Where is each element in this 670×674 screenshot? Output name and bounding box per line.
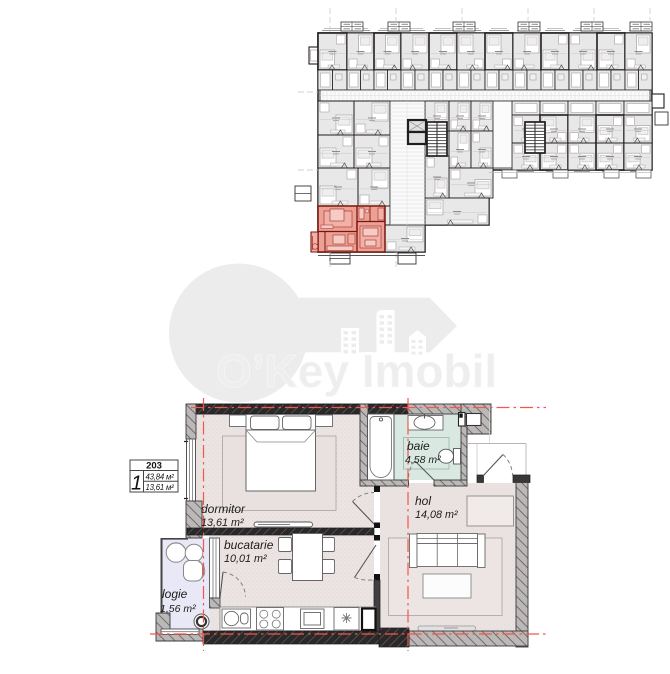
svg-text:dormitor: dormitor <box>201 502 246 516</box>
svg-text:bucatarie: bucatarie <box>224 538 274 552</box>
svg-text:hol: hol <box>415 494 431 508</box>
svg-text:13,61 m²: 13,61 m² <box>201 517 244 529</box>
svg-text:13,61 м²: 13,61 м² <box>146 483 175 492</box>
svg-text:1: 1 <box>131 473 142 495</box>
svg-text:14,08 m²: 14,08 m² <box>415 509 458 521</box>
svg-text:4,58 m²: 4,58 m² <box>405 454 441 466</box>
svg-text:203: 203 <box>146 461 162 472</box>
svg-text:O’Key Imobil: O’Key Imobil <box>216 345 497 397</box>
svg-text:1,56 m²: 1,56 m² <box>160 603 196 615</box>
svg-text:logie: logie <box>162 587 188 601</box>
svg-text:10,01 m²: 10,01 m² <box>224 553 267 565</box>
svg-text:43,84 м²: 43,84 м² <box>146 473 175 482</box>
svg-text:baie: baie <box>407 439 430 453</box>
